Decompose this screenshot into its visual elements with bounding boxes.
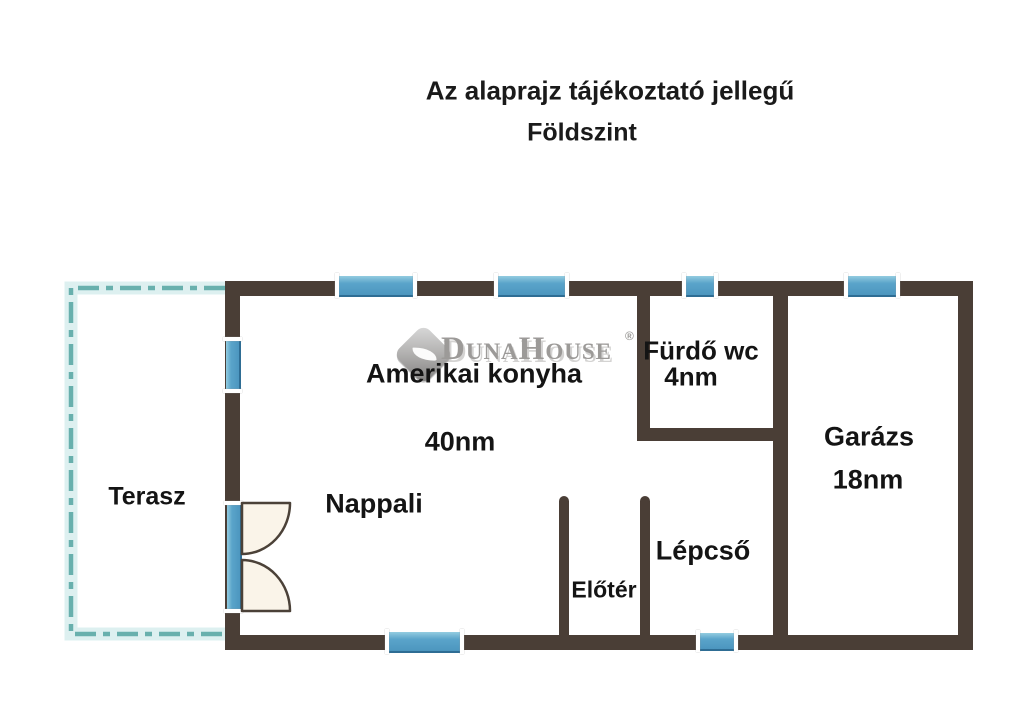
window-kitchen-top-left: [337, 276, 415, 297]
window-kitchen-top-right: [496, 276, 567, 297]
window-bathroom: [684, 276, 716, 297]
wall-foyer-partition: [559, 496, 569, 636]
room-label-nappali: Nappali: [325, 489, 423, 520]
room-label-garazs: Garázs: [824, 422, 914, 453]
wall-kitchen-bath-divider: [637, 293, 650, 441]
wall-stairs-partition: [640, 496, 650, 636]
room-label-lepcso: Lépcső: [656, 536, 751, 567]
room-label-terasz: Terasz: [108, 483, 185, 512]
door-entrance-bottom: [698, 633, 736, 651]
terrace-door-frame: [227, 503, 242, 611]
registered-trademark-icon: ®: [625, 329, 634, 343]
wall-garage-divider: [773, 293, 788, 638]
room-area-konyha: 40nm: [425, 427, 496, 458]
wall-bottom: [225, 635, 973, 650]
floorplan-page: Az alaprajz tájékoztató jellegű Földszin…: [0, 0, 1024, 709]
wall-bath-bottom: [637, 428, 777, 441]
room-area-furdo: 4nm: [664, 362, 717, 393]
room-label-konyha: Amerikai konyha: [366, 359, 582, 390]
wall-right: [958, 281, 973, 650]
window-living-bottom: [387, 632, 462, 653]
window-garage: [846, 276, 898, 297]
window-left-wall: [226, 339, 241, 391]
room-label-eloter: Előtér: [571, 577, 636, 604]
room-area-garazs: 18nm: [833, 465, 904, 496]
